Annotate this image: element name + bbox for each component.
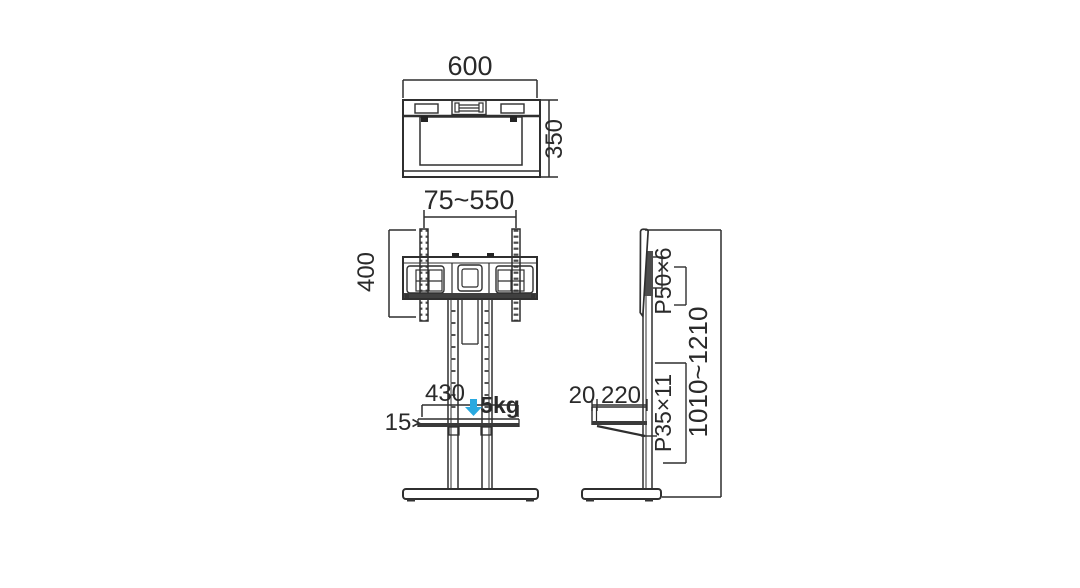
base-front [403,489,538,499]
shelf-load-marker: 5kg [465,392,520,418]
base-side [582,489,661,499]
side-view: 20 220 P50×6 P35×11 1010~1210 [569,229,721,501]
base-plan-outline [420,117,522,165]
bracket-corner-screw [531,294,535,298]
dim-height-range-label: 1010~1210 [683,307,713,438]
dim-shelf-width-label: 430 [425,380,465,407]
dim-shelf-pitch-label: P35×11 [650,374,676,452]
plan-center-tab-left [455,103,459,112]
base-foot [645,499,653,502]
vesa-rail-right [512,229,520,321]
top-view: 600 350 [403,51,568,177]
base-foot [526,499,534,502]
dim-top-width-label: 600 [447,51,492,81]
shelf-support-diagonal [597,426,645,436]
dim-vesa-width-label: 75~550 [424,185,515,215]
bracket-top-tab [452,253,459,257]
bracket-corner-screw [405,294,409,298]
base-foot [586,499,594,502]
front-view: 75~550 400 [353,185,538,502]
base-foot [407,499,415,502]
bracket-bar-bottom-strip [404,293,536,298]
plan-slot-right [501,104,524,113]
plan-slot-left [415,104,438,113]
vesa-rail-left [420,229,428,321]
shelf-load-label: 5kg [480,392,520,418]
technical-drawing: 600 350 75~550 [0,0,1080,588]
dim-vesa-height-label: 400 [353,252,380,292]
column-mark-left [421,116,428,122]
bracket-top-tab [487,253,494,257]
dim-top-depth-label: 350 [541,119,568,159]
column-mark-right [510,116,517,122]
dim-shelf-thickness-label: 15 [385,409,412,436]
plan-center-tab-right [479,103,483,112]
bracket-plate-center-window [462,269,478,287]
dim-top-pitch-label: P50×6 [650,247,676,314]
shelf-body [418,423,519,427]
drawing-canvas: 600 350 75~550 [0,0,1080,588]
shelf-side-body [592,421,647,425]
